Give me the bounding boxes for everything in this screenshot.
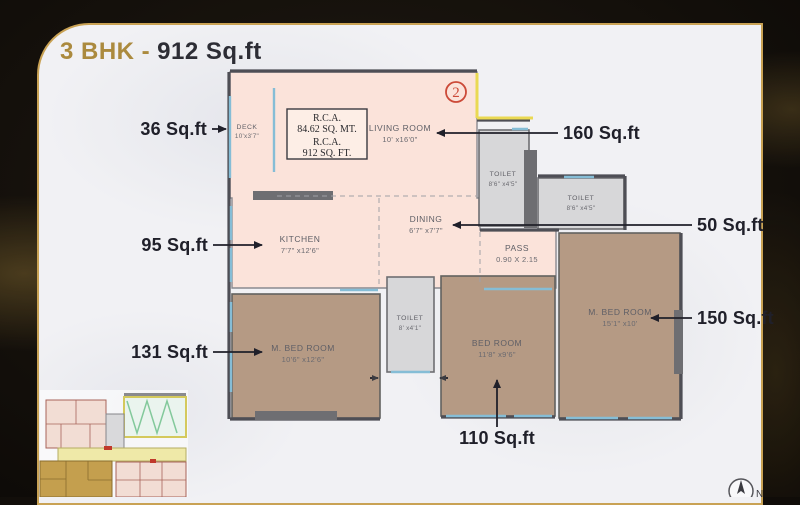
- rca-box: R.C.A. 84.62 SQ. MT. R.C.A. 912 SQ. FT.: [287, 109, 367, 159]
- rca-line2: 84.62 SQ. MT.: [297, 124, 357, 135]
- label-toilet-2: TOILET: [568, 195, 595, 202]
- callout-dining: 50 Sq.ft: [697, 215, 764, 235]
- toilet-divider-block: [524, 150, 537, 228]
- dims-toilet-2: 8'6" x4'5": [567, 205, 596, 212]
- unit-number: 2: [452, 85, 460, 101]
- key-plan-thumbnail: [40, 390, 188, 497]
- label-toilet-1: TOILET: [490, 171, 517, 178]
- callout-bedroom: 110 Sq.ft: [459, 428, 535, 448]
- dims-toilet-3: 8' x4'1": [399, 325, 421, 332]
- label-living-room: LIVING ROOM: [369, 123, 431, 133]
- kitchen-platform-block: [253, 191, 333, 200]
- label-toilet-3: TOILET: [397, 315, 424, 322]
- wardrobe-block-right: [674, 310, 683, 374]
- duct-line: [477, 73, 533, 118]
- callout-deck: 36 Sq.ft: [140, 119, 207, 139]
- dims-mbed-right: 15'1" x10': [602, 319, 637, 328]
- dims-pass: 0.90 X 2.15: [496, 255, 538, 264]
- compass-north-label: N: [756, 489, 763, 497]
- compass-icon: N: [729, 479, 763, 497]
- rca-line4: 912 SQ. FT.: [303, 148, 352, 159]
- dims-kitchen: 7'7" x12'6": [281, 246, 319, 255]
- dims-bedroom: 11'8" x9'6": [478, 350, 516, 359]
- callout-kitchen: 95 Sq.ft: [141, 235, 208, 255]
- dims-dining: 6'7" x7'7": [409, 226, 443, 235]
- callout-mbed-left: 131 Sq.ft: [131, 342, 208, 362]
- label-bedroom: BED ROOM: [472, 338, 522, 348]
- dims-living-room: 10' x16'0": [382, 135, 417, 144]
- room-toilet-1: [479, 130, 529, 226]
- label-deck: DECK: [237, 124, 258, 131]
- dims-toilet-1: 8'6" x4'5": [489, 181, 518, 188]
- rca-line3: R.C.A.: [313, 137, 341, 148]
- wardrobe-block-left: [255, 411, 337, 420]
- callout-living: 160 Sq.ft: [563, 123, 640, 143]
- label-dining: DINING: [410, 214, 443, 224]
- rca-line1: R.C.A.: [313, 113, 341, 124]
- floor-plan: R.C.A. 84.62 SQ. MT. R.C.A. 912 SQ. FT. …: [0, 0, 800, 497]
- dims-mbed-left: 10'6" x12'6": [282, 355, 325, 364]
- label-pass: PASS: [505, 243, 529, 253]
- dims-deck: 10'x3'7": [235, 133, 259, 140]
- label-mbed-left: M. BED ROOM: [271, 343, 335, 353]
- label-kitchen: KITCHEN: [280, 234, 321, 244]
- room-toilet-2: [538, 178, 624, 229]
- callout-mbed-right: 150 Sq.ft: [697, 308, 774, 328]
- label-mbed-right: M. BED ROOM: [588, 307, 652, 317]
